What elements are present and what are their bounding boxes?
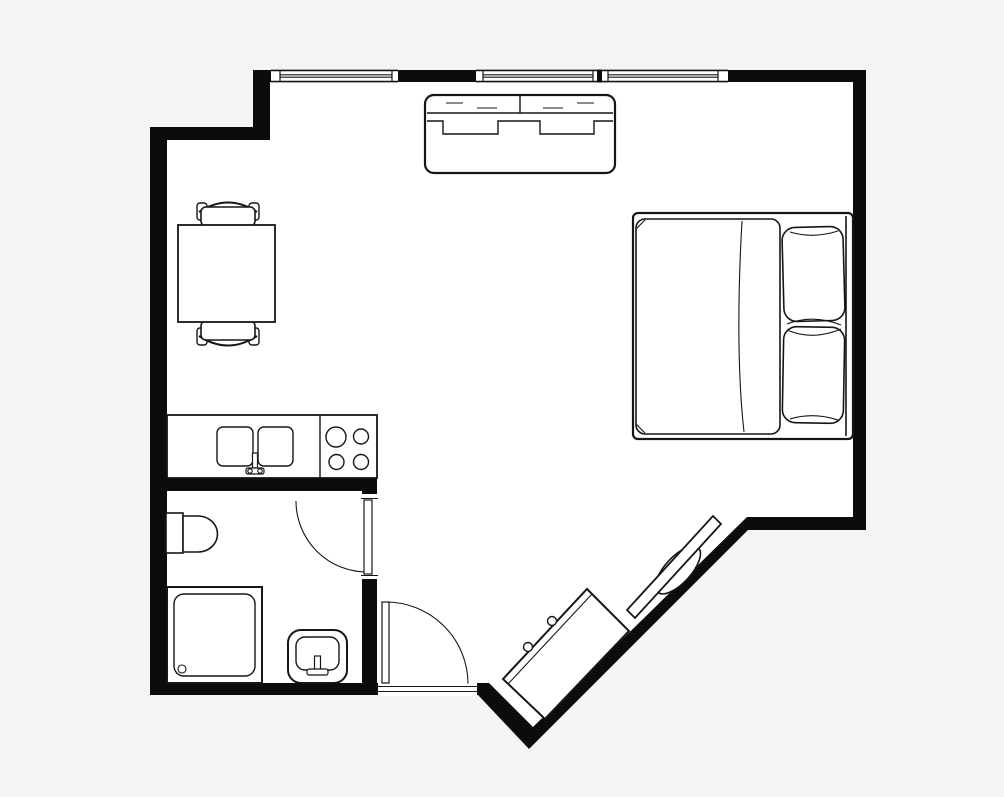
kitchen-counter <box>167 415 377 478</box>
wall-bathroom-east-upper <box>362 478 377 494</box>
window-right <box>602 70 728 83</box>
counter-top <box>167 415 377 478</box>
sideboard-knob <box>524 643 533 652</box>
basin-faucet-base <box>307 669 328 675</box>
floor-plan-canvas <box>0 0 1004 797</box>
floor-plan <box>0 0 1004 797</box>
wall-bathroom-east-lower <box>362 579 377 690</box>
bed-duvet <box>636 219 780 434</box>
toilet-tank <box>166 513 183 553</box>
door-leaf <box>382 602 389 683</box>
window-left <box>271 70 398 83</box>
door-leaf <box>364 500 372 574</box>
window-center <box>476 70 597 83</box>
window-opening <box>476 70 597 83</box>
window-opening <box>271 70 398 83</box>
sofa <box>425 95 615 173</box>
faucet-stem <box>253 453 258 468</box>
chair-seat <box>201 207 255 226</box>
pillow-top <box>782 226 845 322</box>
sideboard-knob <box>548 617 557 626</box>
shower-tray <box>167 587 262 683</box>
toilet <box>166 513 218 553</box>
door-opening <box>378 682 477 696</box>
shower <box>167 587 262 683</box>
double-bed <box>633 213 853 439</box>
dining-table <box>178 225 275 322</box>
chair-seat <box>201 321 255 340</box>
window-mullion <box>597 70 602 83</box>
wall-kitchen-bathroom <box>150 478 377 491</box>
window-opening <box>602 70 728 83</box>
toilet-bowl <box>183 516 218 552</box>
pillow-bottom <box>782 326 845 423</box>
washbasin <box>288 630 347 683</box>
